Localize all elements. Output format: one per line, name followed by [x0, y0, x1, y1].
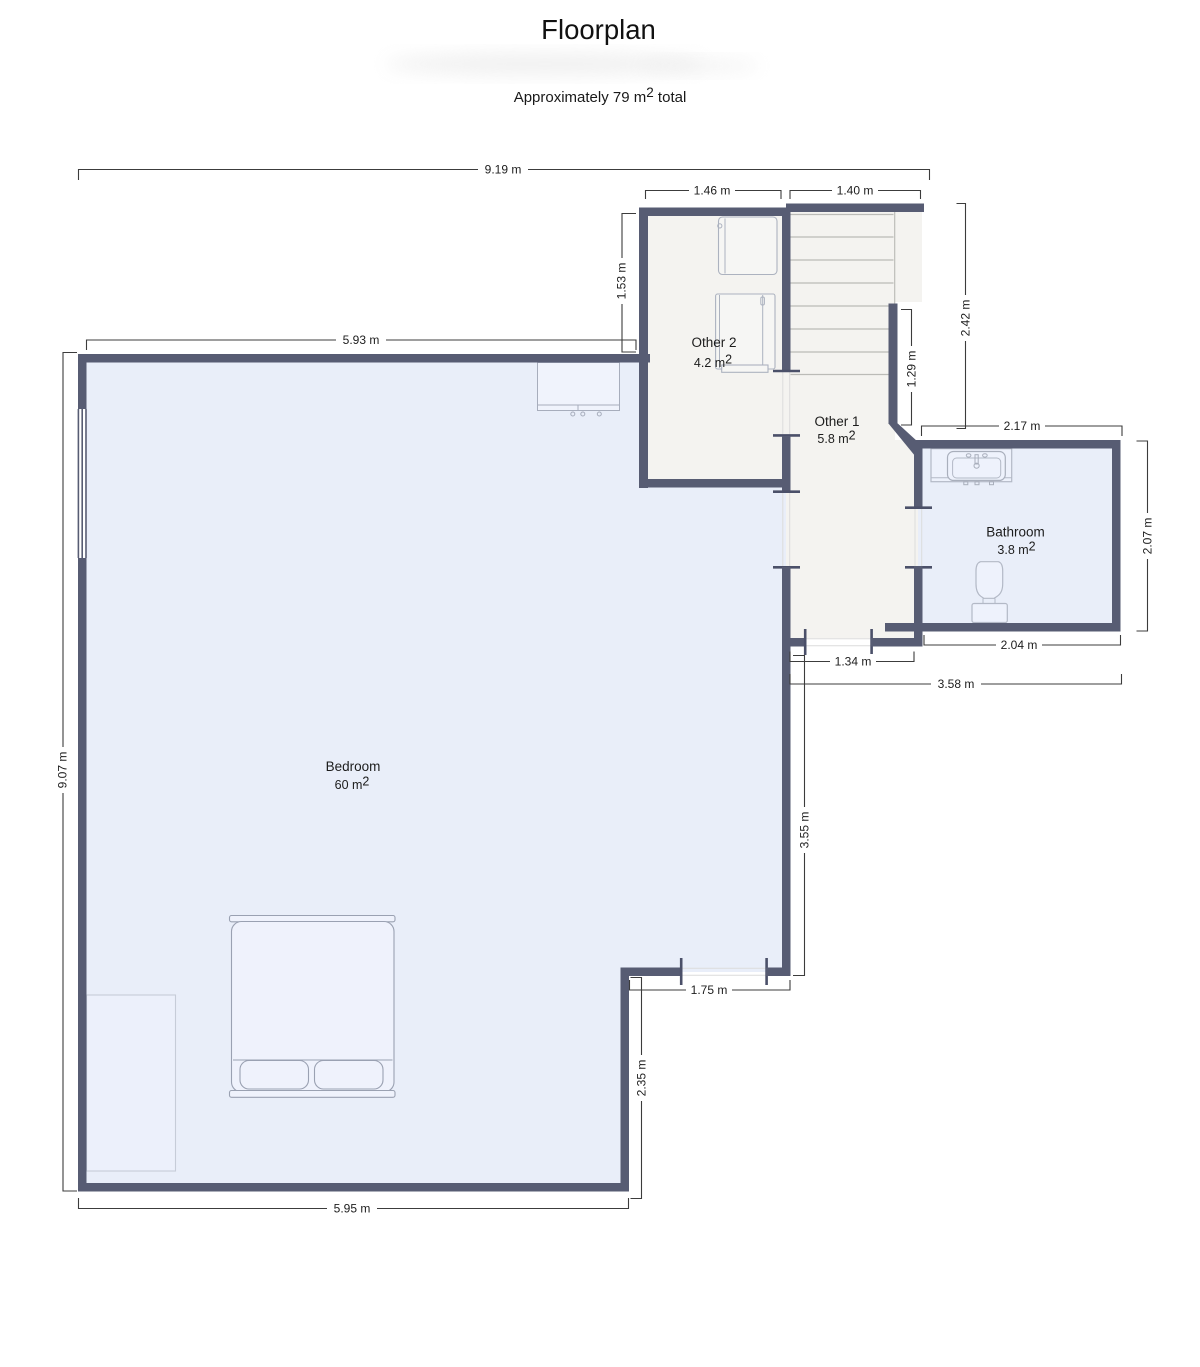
- svg-text:2.42 m: 2.42 m: [959, 300, 973, 337]
- svg-text:Bedroom: Bedroom: [326, 759, 381, 774]
- svg-text:1.53 m: 1.53 m: [615, 263, 629, 300]
- svg-text:Other 2: Other 2: [691, 335, 736, 350]
- svg-text:1.34 m: 1.34 m: [835, 655, 872, 669]
- svg-text:Floorplan: Floorplan: [541, 14, 656, 45]
- svg-text:3.55 m: 3.55 m: [798, 812, 812, 849]
- svg-text:5.95 m: 5.95 m: [334, 1202, 371, 1216]
- svg-text:1.29 m: 1.29 m: [905, 351, 919, 388]
- svg-text:2.17 m: 2.17 m: [1004, 419, 1041, 433]
- svg-text:9.07 m: 9.07 m: [56, 752, 70, 789]
- svg-text:2.07 m: 2.07 m: [1141, 518, 1155, 555]
- svg-text:9.19 m: 9.19 m: [485, 163, 522, 177]
- svg-text:1.75 m: 1.75 m: [691, 983, 728, 997]
- svg-text:3.58 m: 3.58 m: [938, 677, 975, 691]
- svg-text:1.40 m: 1.40 m: [837, 184, 874, 198]
- svg-text:Bathroom: Bathroom: [986, 525, 1045, 540]
- svg-text:2.35 m: 2.35 m: [635, 1060, 649, 1097]
- svg-text:Other 1: Other 1: [814, 414, 859, 429]
- svg-text:1.46 m: 1.46 m: [694, 184, 731, 198]
- svg-text:2.04 m: 2.04 m: [1001, 638, 1038, 652]
- svg-text:5.93 m: 5.93 m: [343, 333, 380, 347]
- svg-text:Approximately 79 m2 total: Approximately 79 m2 total: [514, 85, 687, 106]
